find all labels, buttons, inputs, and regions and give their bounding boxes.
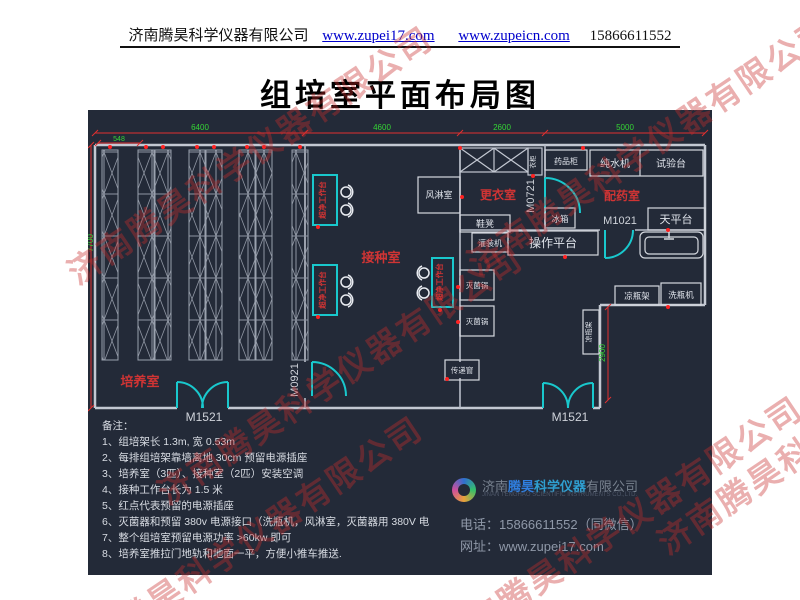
filling-machine-label: 灌装机 [478,238,502,248]
note-item-1: 1、组培架长 1.3m, 宽 0.53m [102,434,429,450]
outer-walls [95,145,705,408]
medicine-cabinet-label: 药品柜 [554,156,578,166]
culture-racks [102,150,308,360]
note-item-2: 2、每排组培架靠墙离地 30cm 预留电源插座 [102,450,429,466]
page-title: 组培室平面布局图 [0,70,800,115]
dimension-lines [88,130,708,411]
stools [341,185,429,307]
fridge-label: 冰箱 [551,214,569,224]
footer-phone-line: 电话：15866611552（同微信） [460,514,643,533]
clean-bench-1-label: 超净工作台 [317,181,327,220]
clean-bench-1: 超净工作台 [313,175,337,225]
room-dispensing-label: 配药室 [604,188,640,203]
water-purifier-label: 纯水机 [600,157,630,170]
header-phone: 15866611552 [590,28,672,44]
header: 济南腾昊科学仪器有限公司 www.zupei17.com www.zupeicn… [0,24,800,45]
test-bench-label: 试验台 [656,157,686,170]
note-item-6: 6、灭菌器和预留 380v 电源接口（洗瓶机，风淋室，灭菌器用 380V 电 [102,514,429,530]
interior-walls [305,145,705,408]
notes-title: 备注： [102,418,429,434]
note-item-4: 4、接种工作台长为 1.5 米 [102,482,429,498]
door-m1021-label: M1021 [603,215,637,227]
dim-4600: 4600 [373,123,391,132]
bottle-rack-v-label: 凉瓶架 [584,322,593,343]
page: 济南腾昊科学仪器有限公司 www.zupei17.com www.zupeicn… [0,0,800,600]
note-item-8: 8、培养室推拉门地轨和地面一平，方便小推车推送. [102,546,429,562]
shoe-bench-label: 鞋凳 [476,218,494,229]
header-link-zupeicn[interactable]: www.zupeicn.com [458,28,570,44]
notes-block: 备注： 1、组培架长 1.3m, 宽 0.53m 2、每排组培架靠墙离地 30c… [102,418,429,562]
note-item-7: 7、整个组培室预留电源功率 >60kw 即可 [102,530,429,546]
clean-bench-2: 超净工作台 [313,265,337,315]
equipment-labels: 风淋室 药品柜 纯水机 试验台 鞋凳 灌装机 操作平台 冰箱 天平台 灭菌锅 灭… [425,156,694,375]
bottle-washer-label: 洗瓶机 [668,290,694,300]
room-inoculation-label: 接种室 [361,250,400,265]
balance-table-label: 天平台 [660,212,693,226]
clean-bench-3: 超净工作台 [432,258,453,307]
bottle-rack-h-label: 凉瓶架 [624,291,650,301]
door-m0921-label: M0921 [289,363,301,397]
clean-bench-2-label: 超净工作台 [317,271,327,310]
sterilizer-2-label: 灭菌锅 [466,316,489,326]
footer-web-line: 网址：www.zupei17.com [460,536,604,555]
door-m1521-right-label: M1521 [552,410,589,424]
header-company: 济南腾昊科学仪器有限公司 [128,28,308,44]
dim-5000: 5000 [616,123,634,132]
dim-2900: 2900 [598,344,607,362]
dim-548: 548 [113,136,125,143]
header-rule [120,46,680,48]
sterilizer-1-label: 灭菌锅 [466,280,489,290]
dim-6400: 6400 [191,123,209,132]
door-m0721-label: M0721 [525,179,537,213]
note-item-5: 5、红点代表预留的电源插座 [102,498,429,514]
wardrobe-label: 衣柜 [528,155,537,169]
room-culture-label: 培养室 [120,374,159,389]
header-link-zupei17[interactable]: www.zupei17.com [322,28,434,44]
air-shower-label: 风淋室 [425,189,452,200]
operation-platform-label: 操作平台 [529,235,577,250]
equipment-boxes [418,150,705,380]
company-logo-icon [452,478,476,502]
floorplan-panel: 衣柜 超净工作台 超净工作台 超净工作台 [88,110,712,575]
room-changing-label: 更衣室 [480,187,516,202]
note-item-3: 3、培养室（3匹）、接种室（2匹）安装空调 [102,466,429,482]
footer-company-english: JINAN TENGHAO SCIENTIFIC INSTRUMENTS CO.… [482,492,637,498]
transfer-window-label: 传递窗 [451,365,474,375]
clean-bench-3-label: 超净工作台 [434,263,444,302]
dim-2600: 2600 [493,123,511,132]
dim-7700: 7700 [88,234,95,252]
